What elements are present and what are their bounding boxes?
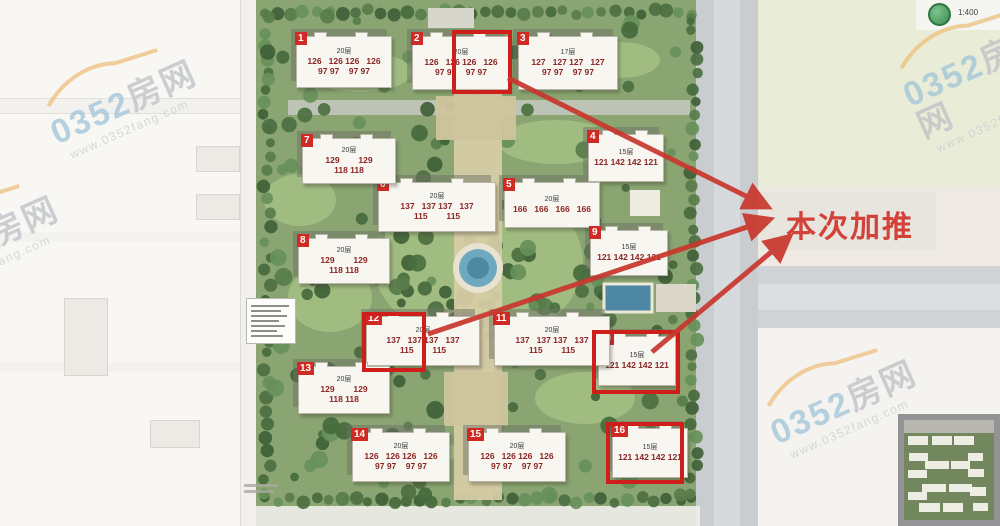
minimap-building [925,461,949,470]
highlight-box-building-12 [362,312,426,372]
minimap-building [951,461,971,469]
minimap-building [919,503,939,512]
minimap-building [968,453,984,461]
minimap-header [904,420,994,433]
minimap-building [932,436,952,445]
minimap-building [908,436,928,445]
minimap-building [943,503,963,512]
highlight-box-building-16 [606,422,684,484]
highlight-box-building-2 [452,30,512,94]
minimap-building [908,470,927,478]
minimap-building [922,484,945,493]
minimap-building [949,484,973,493]
highlight-box-building-10 [592,330,680,394]
highlight-boxes-layer [0,0,1000,526]
promo-label: 本次加推 [786,202,914,246]
minimap-building [909,453,928,461]
minimap-plan [904,420,994,520]
minimap-building [973,503,989,512]
site-plan-image: 1:400 120层126 126 126 12697 97 97 97220层… [0,0,1000,526]
minimap-building [954,436,975,445]
minimap-building [968,469,984,477]
minimap-building [908,492,927,500]
minimap-thumbnail [898,414,1000,526]
